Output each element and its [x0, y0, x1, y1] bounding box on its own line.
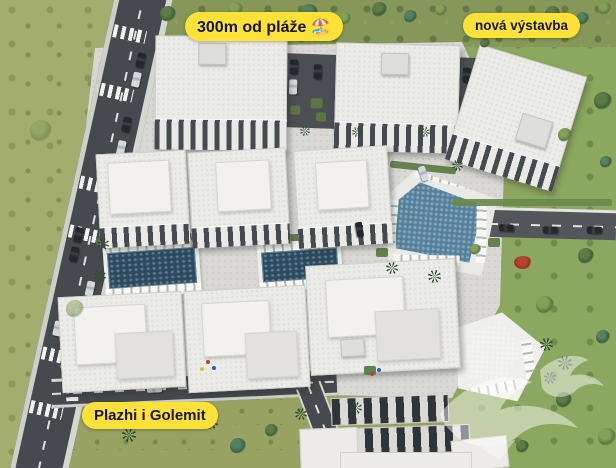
car — [289, 79, 298, 94]
hedge — [310, 98, 322, 108]
palm-tree — [386, 262, 398, 274]
roof-step — [245, 330, 299, 379]
palm-tree — [122, 428, 136, 442]
building-facade — [155, 118, 287, 150]
tree — [598, 2, 611, 15]
tree — [30, 120, 52, 142]
label-new-construction: nová výstavba — [463, 13, 580, 38]
tree — [536, 296, 554, 314]
palm-tree — [420, 127, 430, 137]
palm-tree — [295, 408, 307, 420]
palm-tree — [97, 238, 109, 250]
hedge — [290, 105, 300, 114]
car — [73, 227, 84, 243]
aerial-render-residential-complex: 300m od pláže 🏖️ nová výstavba Plazhi i … — [0, 0, 616, 468]
tree — [66, 300, 84, 318]
car — [135, 52, 146, 68]
hedge — [452, 199, 612, 206]
rooftop-structure — [381, 53, 410, 76]
car — [121, 116, 132, 132]
palm-tree — [452, 160, 463, 171]
palm-tree — [350, 402, 362, 414]
tree — [600, 156, 612, 168]
car — [69, 246, 80, 262]
palm-tree — [94, 270, 106, 282]
car — [313, 64, 322, 79]
car — [543, 226, 558, 233]
flowering-bush — [514, 256, 532, 269]
hedge — [488, 238, 500, 247]
tree — [230, 438, 246, 454]
tree — [558, 128, 572, 142]
roof-step — [115, 330, 175, 379]
apartment-building — [293, 145, 393, 249]
apartment-building — [183, 285, 310, 393]
playground-equipment — [377, 368, 381, 372]
car — [131, 71, 142, 87]
pool-water — [107, 247, 197, 289]
playground-equipment — [206, 360, 210, 364]
crosswalk — [112, 24, 147, 44]
hedge — [316, 112, 326, 121]
palm-tree — [300, 126, 310, 136]
playground-equipment — [200, 367, 204, 371]
car — [85, 280, 96, 296]
apartment-building — [155, 35, 288, 150]
roof-step — [107, 160, 172, 215]
tree — [435, 4, 447, 16]
parking-lot — [282, 53, 339, 129]
playground-equipment — [212, 366, 216, 370]
label-beach-name: Plazhi i Golemit — [82, 402, 218, 429]
playground-equipment — [370, 372, 374, 376]
tree — [594, 92, 612, 110]
hedge — [376, 248, 388, 257]
palm-tree — [540, 338, 553, 351]
rooftop-structure — [340, 338, 365, 357]
apartment-building — [334, 42, 461, 153]
tree — [480, 38, 490, 48]
palm-tree — [352, 127, 362, 137]
tree — [470, 244, 481, 255]
tree — [596, 330, 610, 344]
apartment-building — [188, 148, 291, 249]
tree — [404, 10, 417, 23]
swallow-birds-watermark-icon — [420, 352, 610, 467]
apartment-building — [96, 150, 191, 249]
car — [499, 224, 514, 231]
rooftop-structure — [198, 43, 226, 65]
tree — [160, 6, 176, 22]
crosswalk — [99, 83, 134, 103]
tree — [372, 2, 387, 17]
roof-step — [315, 159, 370, 210]
car — [587, 226, 602, 233]
roof-step — [215, 159, 272, 212]
tree — [578, 248, 594, 264]
palm-tree — [428, 270, 441, 283]
car — [290, 59, 299, 74]
label-beach-distance: 300m od pláže 🏖️ — [185, 12, 343, 41]
rooftop-structure — [515, 113, 554, 149]
tree — [265, 424, 278, 437]
